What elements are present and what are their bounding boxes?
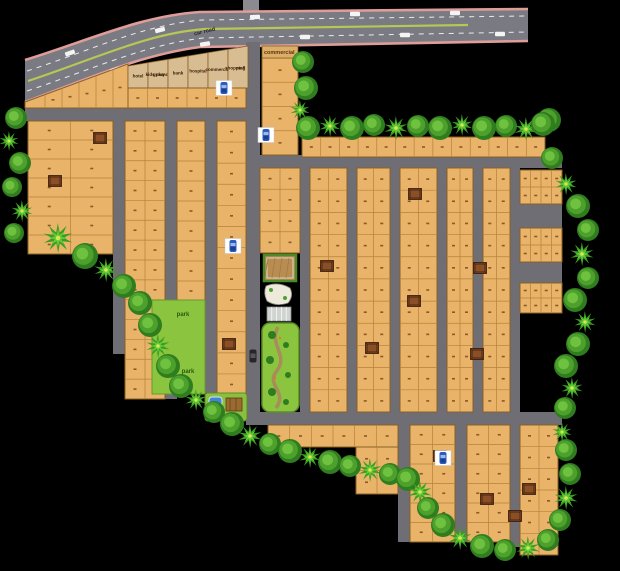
plot-number-mark — [452, 311, 455, 313]
plot-number-mark — [502, 356, 505, 358]
plot-number-mark — [380, 334, 383, 336]
plot-number-mark — [154, 289, 157, 291]
plot-number-mark — [134, 368, 137, 370]
plot-number-mark — [426, 334, 429, 336]
plot-number-mark — [408, 178, 411, 180]
tree-canopy-light — [263, 437, 273, 447]
plot-number-mark — [488, 245, 491, 247]
tree-icon — [541, 147, 563, 169]
plot-number-mark — [426, 400, 429, 402]
plot-block — [260, 168, 300, 253]
plot-number-mark — [289, 199, 292, 201]
plot-number-mark — [154, 190, 157, 192]
plot-block — [400, 168, 437, 412]
tree-canopy-light — [173, 378, 184, 389]
plot-number-mark — [380, 245, 383, 247]
plot-number-mark — [48, 225, 51, 227]
plot-number-mark — [364, 289, 367, 291]
tree-canopy-light — [322, 454, 333, 465]
plot-number-mark — [380, 223, 383, 225]
plot-number-mark — [498, 453, 501, 455]
plot-number-mark — [452, 223, 455, 225]
plot-number-mark — [321, 435, 324, 437]
plot-number-mark — [190, 230, 193, 232]
plot-number-mark — [476, 492, 479, 494]
plot-number-mark — [465, 311, 468, 313]
tree-canopy-light — [343, 459, 353, 469]
plot-number-mark — [502, 200, 505, 202]
tree-icon — [428, 116, 452, 140]
plot-number-mark — [426, 200, 429, 202]
plot-number-mark — [476, 512, 479, 514]
plot-number-mark — [528, 478, 531, 480]
tree-canopy-light — [541, 533, 551, 543]
tree-canopy-light — [116, 278, 127, 289]
plot-number-mark — [230, 320, 233, 322]
plot-number-mark — [524, 253, 527, 255]
plot-number-mark — [465, 356, 468, 358]
plot-number-mark — [134, 388, 137, 390]
plot-number-mark — [154, 130, 157, 132]
plot-number-mark — [452, 245, 455, 247]
plot-number-mark — [408, 223, 411, 225]
car-windshield — [222, 85, 227, 88]
plot-number-mark — [347, 146, 350, 148]
plot-number-mark — [364, 200, 367, 202]
plot-number-mark — [408, 245, 411, 247]
plot-number-mark — [502, 311, 505, 313]
plot-number-mark — [408, 400, 411, 402]
house-roof — [225, 341, 233, 347]
plot-number-mark — [385, 146, 388, 148]
plot-number-mark — [528, 500, 531, 502]
tree-icon — [494, 539, 516, 561]
tree-icon — [470, 534, 494, 558]
plot-number-mark — [488, 356, 491, 358]
garden-tree — [283, 399, 289, 405]
palm-crown — [458, 536, 462, 540]
tree-canopy-light — [160, 358, 171, 369]
tree-canopy-light — [558, 401, 568, 411]
plot-number-mark — [318, 311, 321, 313]
plot-number-mark — [452, 356, 455, 358]
plot-number-mark — [90, 168, 93, 170]
plot-number-mark — [502, 378, 505, 380]
plot-number-mark — [476, 531, 479, 533]
plot-number-mark — [90, 130, 93, 132]
palm-crown — [56, 236, 61, 241]
tree-icon — [294, 76, 318, 100]
plot-number-mark — [190, 130, 193, 132]
plot-number-mark — [154, 210, 157, 212]
plot-number-mark — [408, 289, 411, 291]
palm-crown — [194, 398, 197, 401]
plot-number-mark — [498, 531, 501, 533]
plot-number-mark — [420, 473, 423, 475]
road — [510, 168, 520, 412]
plot-number-mark — [534, 290, 537, 292]
road — [246, 412, 562, 425]
house-roof — [368, 345, 376, 351]
plot-number-mark — [190, 150, 193, 152]
road — [300, 168, 310, 412]
small-court — [267, 307, 291, 321]
plot-number-mark — [465, 334, 468, 336]
plot-number-mark — [230, 131, 233, 133]
plot-number-mark — [534, 178, 537, 180]
plot-number-mark — [380, 378, 383, 380]
car-windshield — [441, 455, 446, 458]
road — [246, 42, 260, 425]
commercial-label: commercial — [264, 50, 295, 56]
house-icon — [366, 343, 379, 354]
tree-canopy-light — [499, 119, 509, 129]
tree-canopy-light — [570, 336, 581, 347]
plot-number-mark — [230, 194, 233, 196]
plot-number-mark — [90, 206, 93, 208]
plot-number-mark — [269, 178, 272, 180]
clubhouse — [265, 284, 292, 305]
plot-number-mark — [465, 178, 468, 180]
plot-number-mark — [534, 146, 537, 148]
tree-icon — [5, 107, 27, 129]
plot-number-mark — [279, 142, 282, 144]
plot-number-mark — [48, 244, 51, 246]
plot-number-mark — [524, 178, 527, 180]
house-roof — [323, 263, 331, 269]
clubhouse-shrub — [283, 296, 287, 300]
tree-icon — [472, 116, 496, 140]
tree-canopy-light — [563, 467, 573, 477]
plot-block — [483, 168, 510, 412]
plot-number-mark — [365, 481, 368, 483]
plot-number-mark — [289, 220, 292, 222]
plot-number-mark — [136, 97, 139, 99]
plot-number-mark — [547, 435, 550, 437]
plot-number-mark — [336, 200, 339, 202]
plot-number-mark — [524, 236, 527, 238]
house-roof — [483, 496, 491, 502]
tree-icon — [577, 267, 599, 289]
plot-number-mark — [555, 290, 558, 292]
plot-number-mark — [452, 200, 455, 202]
plot-number-mark — [420, 531, 423, 533]
road — [205, 121, 217, 393]
tree-canopy-light — [367, 118, 377, 128]
plot-number-mark — [190, 270, 193, 272]
car-roof — [251, 354, 256, 359]
plot-number-mark — [134, 130, 137, 132]
plot-number-mark — [364, 356, 367, 358]
house-roof — [51, 178, 59, 184]
plot-number-mark — [547, 500, 550, 502]
plot-number-mark — [380, 356, 383, 358]
plot-number-mark — [134, 150, 137, 152]
palm-crown — [368, 468, 372, 472]
palm-crown — [418, 490, 422, 494]
house-roof — [473, 351, 481, 357]
plot-number-mark — [336, 267, 339, 269]
plot-number-mark — [488, 400, 491, 402]
road-car-icon — [400, 33, 410, 37]
plot-number-mark — [154, 229, 157, 231]
tree-icon — [340, 116, 364, 140]
plot-number-mark — [555, 195, 558, 197]
tree-icon — [2, 177, 22, 197]
plot-number-mark — [478, 146, 481, 148]
plot-number-mark — [279, 94, 282, 96]
plot-number-mark — [488, 267, 491, 269]
plot-number-mark — [269, 242, 272, 244]
tree-canopy-light — [400, 471, 411, 482]
palm-crown — [20, 209, 23, 212]
plot-number-mark — [452, 400, 455, 402]
palm-crown — [564, 496, 568, 500]
plot-number-mark — [364, 378, 367, 380]
plot-number-mark — [545, 253, 548, 255]
tree-icon — [407, 115, 429, 137]
tree-canopy-light — [474, 538, 485, 549]
plot-number-mark — [426, 356, 429, 358]
car-icon — [225, 239, 241, 254]
house-icon — [409, 189, 422, 200]
plot-number-mark — [154, 269, 157, 271]
plot-number-mark — [426, 267, 429, 269]
road-car-icon — [450, 11, 460, 15]
plot-number-mark — [502, 334, 505, 336]
house-icon — [408, 296, 421, 307]
plot-number-mark — [269, 199, 272, 201]
plot-number-mark — [103, 90, 106, 92]
plot-number-mark — [488, 200, 491, 202]
tree-icon — [169, 374, 193, 398]
plot-number-mark — [230, 152, 233, 154]
plot-number-mark — [422, 146, 425, 148]
plot-number-mark — [336, 289, 339, 291]
tree-canopy-light — [535, 116, 546, 127]
road — [347, 168, 357, 412]
plot-number-mark — [318, 200, 321, 202]
plot-block — [177, 121, 205, 301]
car-roof — [231, 247, 236, 251]
plot-number-mark — [380, 311, 383, 313]
plot-number-mark — [555, 178, 558, 180]
plot-number-mark — [408, 356, 411, 358]
plot-number-mark — [515, 146, 518, 148]
plot-number-mark — [336, 245, 339, 247]
palm-crown — [308, 455, 311, 458]
plot-number-mark — [380, 200, 383, 202]
plot-number-mark — [134, 329, 137, 331]
plot-number-mark — [134, 229, 137, 231]
plot-number-mark — [269, 220, 272, 222]
plot-number-mark — [380, 289, 383, 291]
plot-number-mark — [230, 173, 233, 175]
car-on-road-icon — [250, 350, 257, 363]
plot-number-mark — [190, 170, 193, 172]
plot-number-mark — [441, 146, 444, 148]
plot-block — [520, 283, 562, 313]
plot-number-mark — [299, 435, 302, 437]
house-roof — [96, 135, 104, 141]
tree-icon — [531, 112, 555, 136]
tree-icon — [138, 313, 162, 337]
plot-number-mark — [547, 478, 550, 480]
road-car-icon — [250, 15, 260, 20]
plot-number-mark — [442, 492, 445, 494]
palm-crown — [580, 252, 584, 256]
plot-number-mark — [364, 223, 367, 225]
plot-number-mark — [318, 223, 321, 225]
plot-number-mark — [545, 236, 548, 238]
plot-number-mark — [488, 223, 491, 225]
plot-number-mark — [528, 522, 531, 524]
road — [510, 425, 520, 547]
plot-number-mark — [364, 311, 367, 313]
tree-icon — [128, 291, 152, 315]
plot-number-mark — [366, 146, 369, 148]
garden-tree — [268, 388, 276, 396]
car-windshield — [231, 243, 236, 246]
tree-icon — [549, 509, 571, 531]
tree-icon — [318, 450, 342, 474]
plot-number-mark — [190, 190, 193, 192]
plot-number-mark — [230, 299, 233, 301]
tree-canopy-light — [581, 223, 591, 233]
palm-crown — [299, 109, 302, 112]
tree-canopy-light — [383, 467, 393, 477]
plot-number-mark — [134, 249, 137, 251]
plot-number-mark — [498, 434, 501, 436]
tree-canopy-light — [13, 156, 23, 166]
sports-court — [264, 255, 296, 281]
plot-number-mark — [318, 178, 321, 180]
plot-number-mark — [235, 97, 238, 99]
plot-number-mark — [442, 434, 445, 436]
house-roof — [411, 191, 419, 197]
garden-flower — [279, 337, 281, 339]
plot-number-mark — [48, 130, 51, 132]
tree-canopy-light — [432, 120, 443, 131]
palm-crown — [460, 123, 463, 126]
palm-crown — [104, 268, 108, 272]
plot-number-mark — [426, 178, 429, 180]
plot-number-mark — [310, 146, 313, 148]
tree-canopy-light — [300, 120, 311, 131]
plot-number-mark — [442, 473, 445, 475]
palm-crown — [583, 320, 586, 323]
house-icon — [223, 339, 236, 350]
plot-number-mark — [420, 434, 423, 436]
plot-number-mark — [408, 200, 411, 202]
plot-number-mark — [502, 400, 505, 402]
tree-canopy-light — [132, 295, 143, 306]
plot-number-mark — [408, 334, 411, 336]
tree-canopy-light — [567, 292, 578, 303]
plot-number-mark — [476, 453, 479, 455]
plot-number-mark — [403, 146, 406, 148]
tree-icon — [339, 455, 361, 477]
plot-number-mark — [318, 356, 321, 358]
plot-number-mark — [318, 289, 321, 291]
tree-icon — [278, 439, 302, 463]
tree-icon — [292, 51, 314, 73]
plot-number-mark — [502, 223, 505, 225]
plot-number-mark — [545, 305, 548, 307]
plot-number-mark — [452, 267, 455, 269]
road-car-icon — [350, 12, 360, 16]
tree-canopy-light — [207, 405, 217, 415]
plot-number-mark — [134, 190, 137, 192]
plot-number-mark — [230, 384, 233, 386]
road — [437, 168, 447, 412]
tree-canopy-light — [553, 513, 563, 523]
tree-icon — [537, 529, 559, 551]
tree-canopy-light — [8, 227, 17, 236]
plot-number-mark — [459, 146, 462, 148]
plot-number-mark — [452, 178, 455, 180]
plot-number-mark — [365, 458, 368, 460]
house-icon — [321, 261, 334, 272]
plot-number-mark — [364, 334, 367, 336]
site-plan: car roadhotelkids playgroundbankhospital… — [0, 0, 620, 571]
plot-number-mark — [408, 311, 411, 313]
plot-number-mark — [134, 210, 137, 212]
plot-number-mark — [119, 87, 122, 89]
garden-tree — [268, 331, 276, 339]
plot-number-mark — [465, 267, 468, 269]
plot-number-mark — [386, 435, 389, 437]
plot-number-mark — [154, 249, 157, 251]
house-roof — [511, 513, 519, 519]
tree-canopy-light — [298, 80, 309, 91]
plot-number-mark — [465, 223, 468, 225]
plot-number-mark — [230, 278, 233, 280]
plot-number-mark — [215, 97, 218, 99]
plot-number-mark — [364, 435, 367, 437]
tree-icon — [577, 219, 599, 241]
plot-number-mark — [488, 289, 491, 291]
plot-number-mark — [134, 269, 137, 271]
plot-number-mark — [524, 305, 527, 307]
tree-icon — [495, 115, 517, 137]
plot-number-mark — [426, 378, 429, 380]
tree-icon — [9, 152, 31, 174]
road — [473, 168, 483, 412]
plot-number-mark — [555, 305, 558, 307]
plot-block — [447, 168, 473, 412]
plot-number-mark — [52, 99, 55, 101]
special-plot-label: bank — [173, 70, 184, 75]
plot-number-mark — [465, 400, 468, 402]
plot-number-mark — [498, 512, 501, 514]
plot-number-mark — [452, 334, 455, 336]
tree-canopy-light — [77, 248, 89, 260]
plot-number-mark — [90, 149, 93, 151]
road-car-icon — [300, 35, 310, 39]
palm-crown — [524, 127, 528, 131]
tree-icon — [72, 243, 98, 269]
plot-number-mark — [547, 457, 550, 459]
plot-number-mark — [190, 290, 193, 292]
palm-crown — [564, 182, 567, 185]
house-icon — [474, 263, 487, 274]
tree-icon — [559, 463, 581, 485]
plot-number-mark — [279, 69, 282, 71]
special-plot-label: hospital — [189, 69, 206, 74]
plot-number-mark — [488, 311, 491, 313]
plot-number-mark — [318, 400, 321, 402]
